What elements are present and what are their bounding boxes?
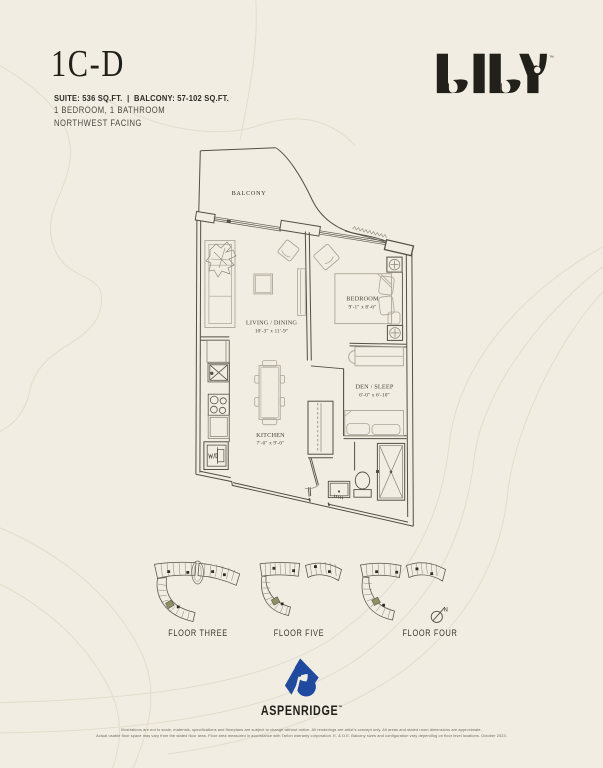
svg-text:BALCONY: BALCONY <box>232 190 267 197</box>
svg-text:10′-3″ x 11′-9″: 10′-3″ x 11′-9″ <box>255 329 288 335</box>
svg-text:LIVING / DINING: LIVING / DINING <box>246 320 298 327</box>
svg-text:BEDROOM: BEDROOM <box>346 296 379 303</box>
svg-text:7′-6″ x 9′-6″: 7′-6″ x 9′-6″ <box>257 441 285 447</box>
svg-text:™: ™ <box>549 55 554 61</box>
svg-text:KITCHEN: KITCHEN <box>256 432 285 439</box>
svg-text:DEN / SLEEP: DEN / SLEEP <box>355 384 393 391</box>
svg-text:N: N <box>444 608 448 614</box>
svg-text:9′-1″ x 8′-6″: 9′-1″ x 8′-6″ <box>349 305 377 311</box>
svg-text:6′-0″ x 6′-10″: 6′-0″ x 6′-10″ <box>359 393 390 399</box>
